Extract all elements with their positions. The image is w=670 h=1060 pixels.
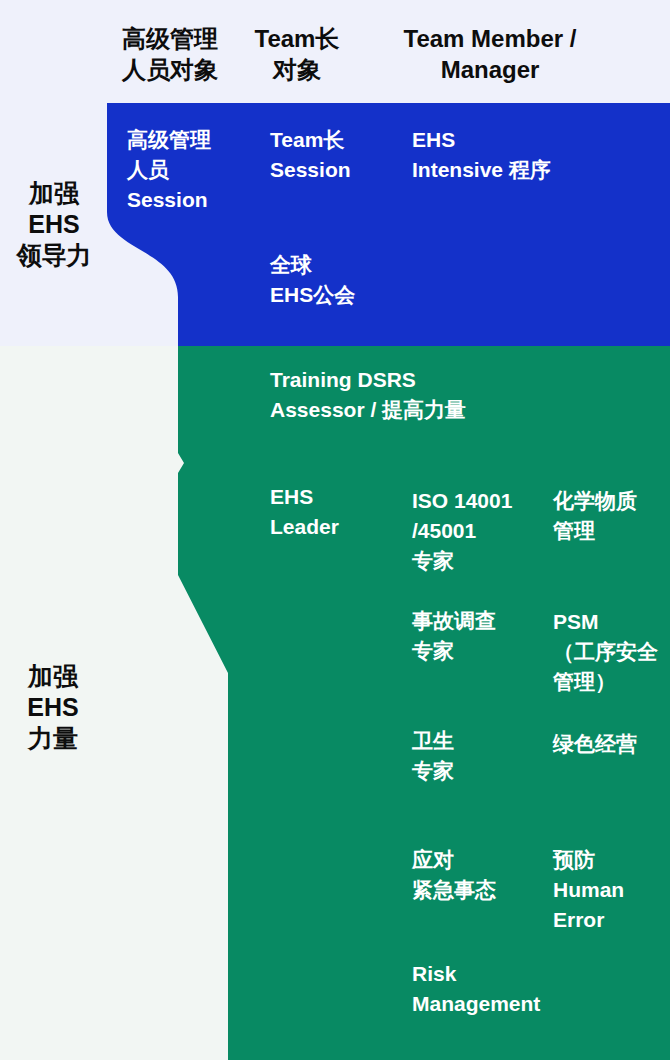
cell-psm-process-safety-management: PSM （工序安全 管理） xyxy=(553,607,658,697)
cell-incident-investigation-expert: 事故调查 专家 xyxy=(412,606,496,666)
strength-region-shape xyxy=(178,346,670,1060)
row-group-label-ehs-leadership: 加强 EHS 领导力 xyxy=(8,178,100,271)
cell-iso-14001-45001-expert: ISO 14001 /45001 专家 xyxy=(412,486,512,576)
cell-team-leader-session: Team长 Session xyxy=(270,125,351,185)
cell-green-management: 绿色经营 xyxy=(553,729,637,759)
cell-emergency-response: 应对 紧急事态 xyxy=(412,845,496,905)
cell-ehs-intensive-program: EHS Intensive 程序 xyxy=(412,125,551,185)
row-group-label-ehs-strength: 加强 EHS 力量 xyxy=(8,661,98,754)
cell-training-dsrs-assessor: Training DSRS Assessor / 提高力量 xyxy=(270,365,466,425)
column-header-team-member-manager: Team Member / Manager xyxy=(380,23,600,85)
cell-ehs-leader: EHS Leader xyxy=(270,482,339,542)
cell-risk-management: Risk Management xyxy=(412,959,540,1019)
cell-chemical-substance-management: 化学物质 管理 xyxy=(553,486,637,546)
cell-global-ehs-council: 全球 EHS公会 xyxy=(270,250,355,310)
cell-hygiene-expert: 卫生 专家 xyxy=(412,726,454,786)
cell-senior-management-session: 高级管理 人员 Session xyxy=(127,125,211,215)
cell-human-error-prevention: 预防 Human Error xyxy=(553,845,624,935)
column-header-senior-management: 高级管理 人员对象 xyxy=(90,23,250,85)
column-header-team-leader: Team长 对象 xyxy=(230,23,364,85)
